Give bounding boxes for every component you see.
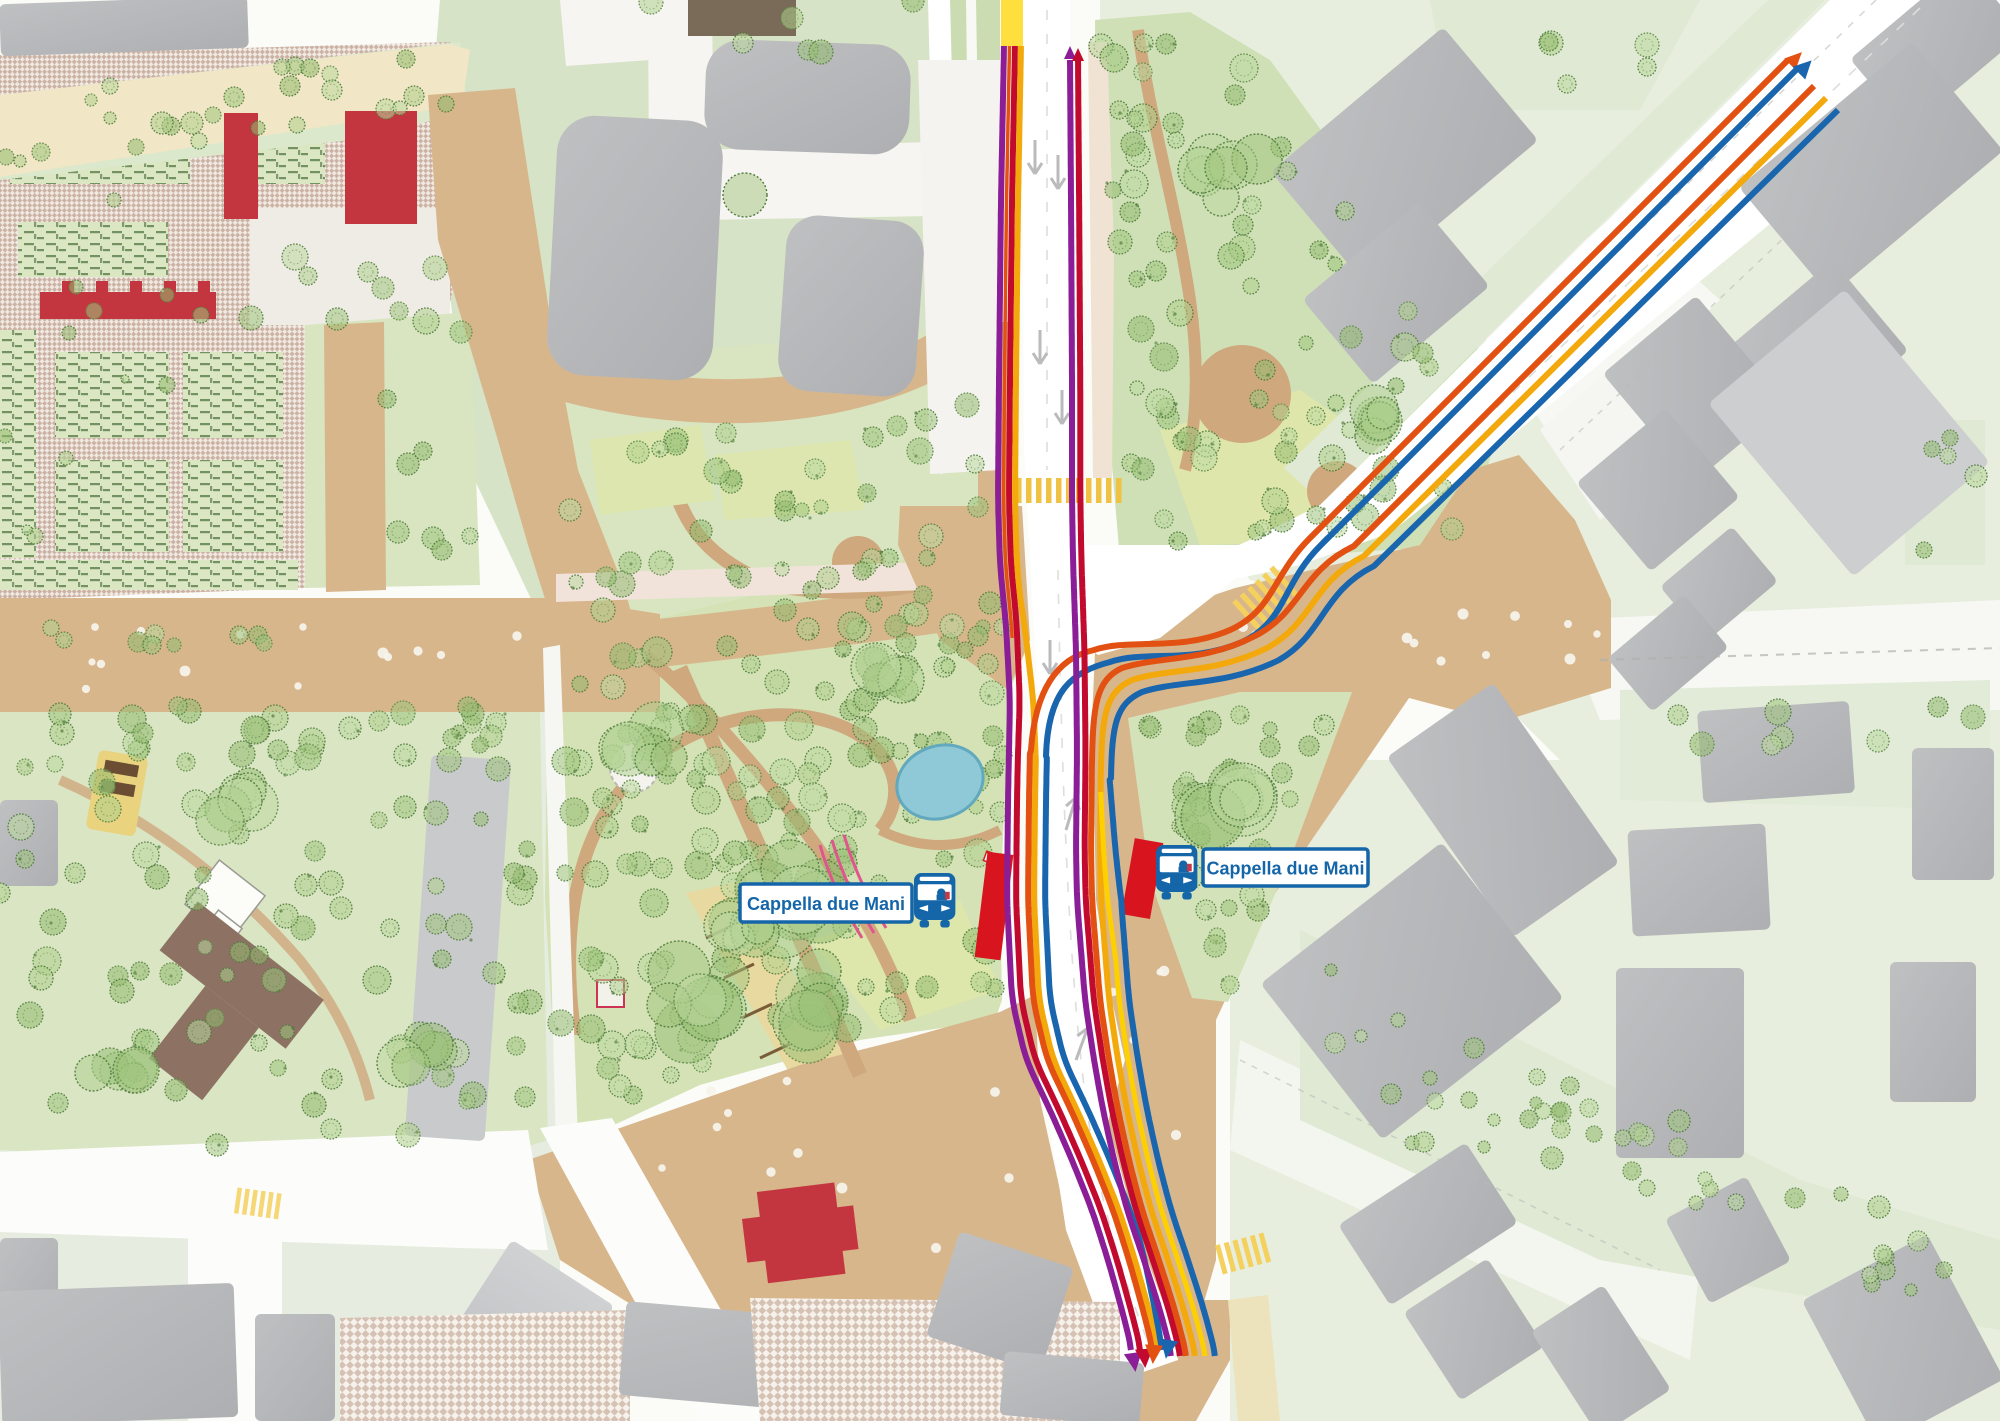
svg-text:Cappella due Mani: Cappella due Mani <box>1206 859 1364 879</box>
svg-text:Cappella due Mani: Cappella due Mani <box>747 894 905 914</box>
